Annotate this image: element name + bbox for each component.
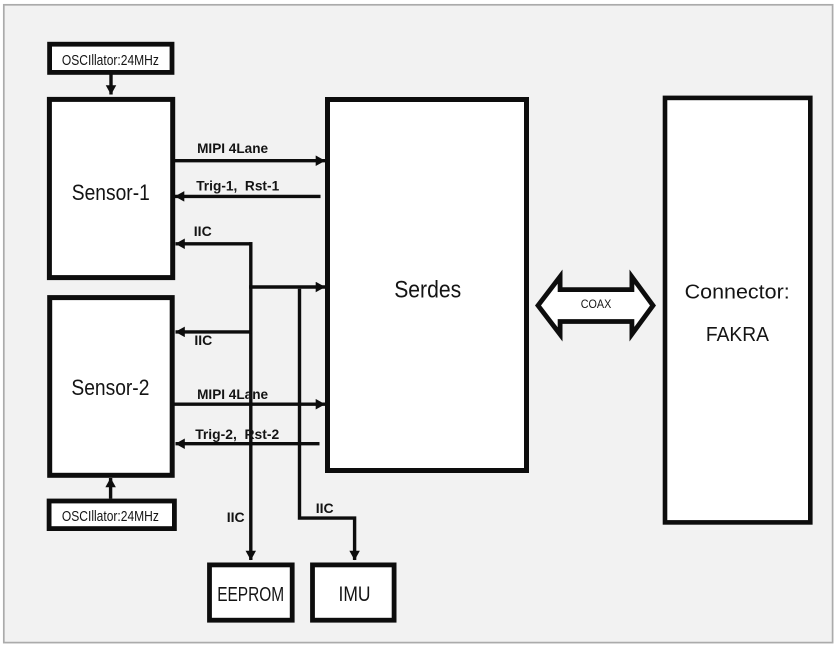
- svg-text:IMU: IMU: [339, 583, 371, 606]
- svg-text:IIC: IIC: [227, 509, 245, 525]
- svg-text:Serdes: Serdes: [394, 276, 461, 303]
- svg-text:MIPI 4Lane: MIPI 4Lane: [197, 386, 268, 402]
- svg-text:IIC: IIC: [194, 332, 212, 348]
- svg-text:IIC: IIC: [316, 500, 334, 516]
- svg-text:EEPROM: EEPROM: [217, 584, 284, 606]
- svg-text:MIPI 4Lane: MIPI 4Lane: [197, 140, 268, 156]
- svg-text:FAKRA: FAKRA: [706, 324, 770, 346]
- svg-text:COAX: COAX: [581, 299, 612, 311]
- svg-text:Sensor-1: Sensor-1: [72, 180, 150, 205]
- svg-text:OSCIllator:24MHz: OSCIllator:24MHz: [62, 508, 159, 525]
- svg-text:Sensor-2: Sensor-2: [71, 375, 149, 400]
- svg-text:IIC: IIC: [194, 223, 212, 239]
- svg-text:Trig-2, Rst-2: Trig-2, Rst-2: [195, 426, 279, 442]
- svg-text:OSCIllator:24MHz: OSCIllator:24MHz: [62, 52, 159, 69]
- svg-text:Trig-1, Rst-1: Trig-1, Rst-1: [196, 177, 279, 193]
- svg-text:Connector:: Connector:: [685, 281, 790, 303]
